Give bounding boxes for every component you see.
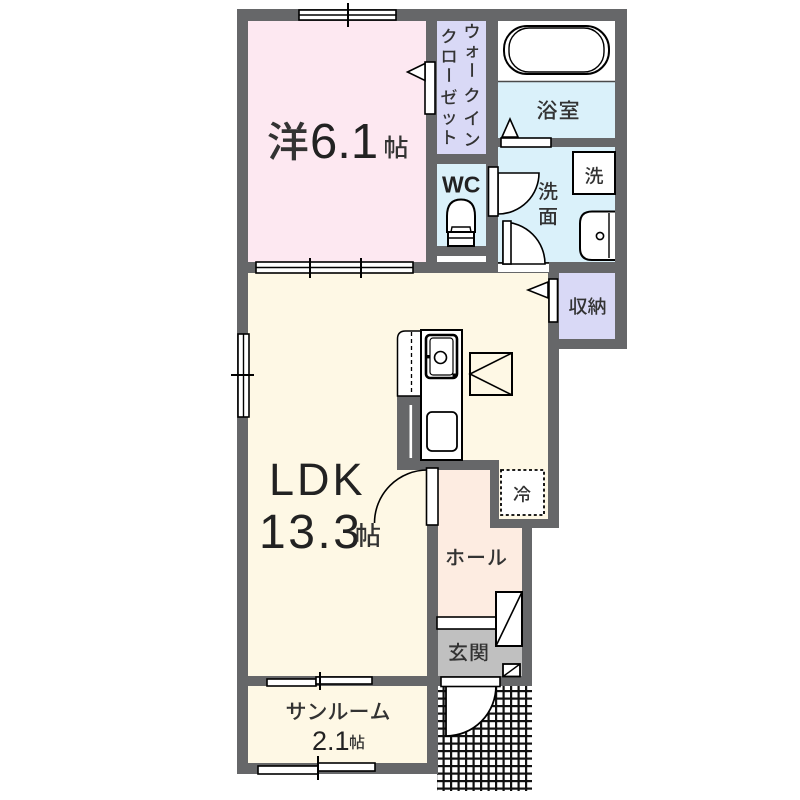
svg-text:13.3: 13.3: [259, 506, 362, 559]
svg-text:2.1: 2.1: [312, 726, 350, 756]
svg-text:6.1: 6.1: [310, 115, 378, 169]
svg-text:WC: WC: [442, 172, 480, 198]
svg-text:LDK: LDK: [269, 454, 366, 505]
